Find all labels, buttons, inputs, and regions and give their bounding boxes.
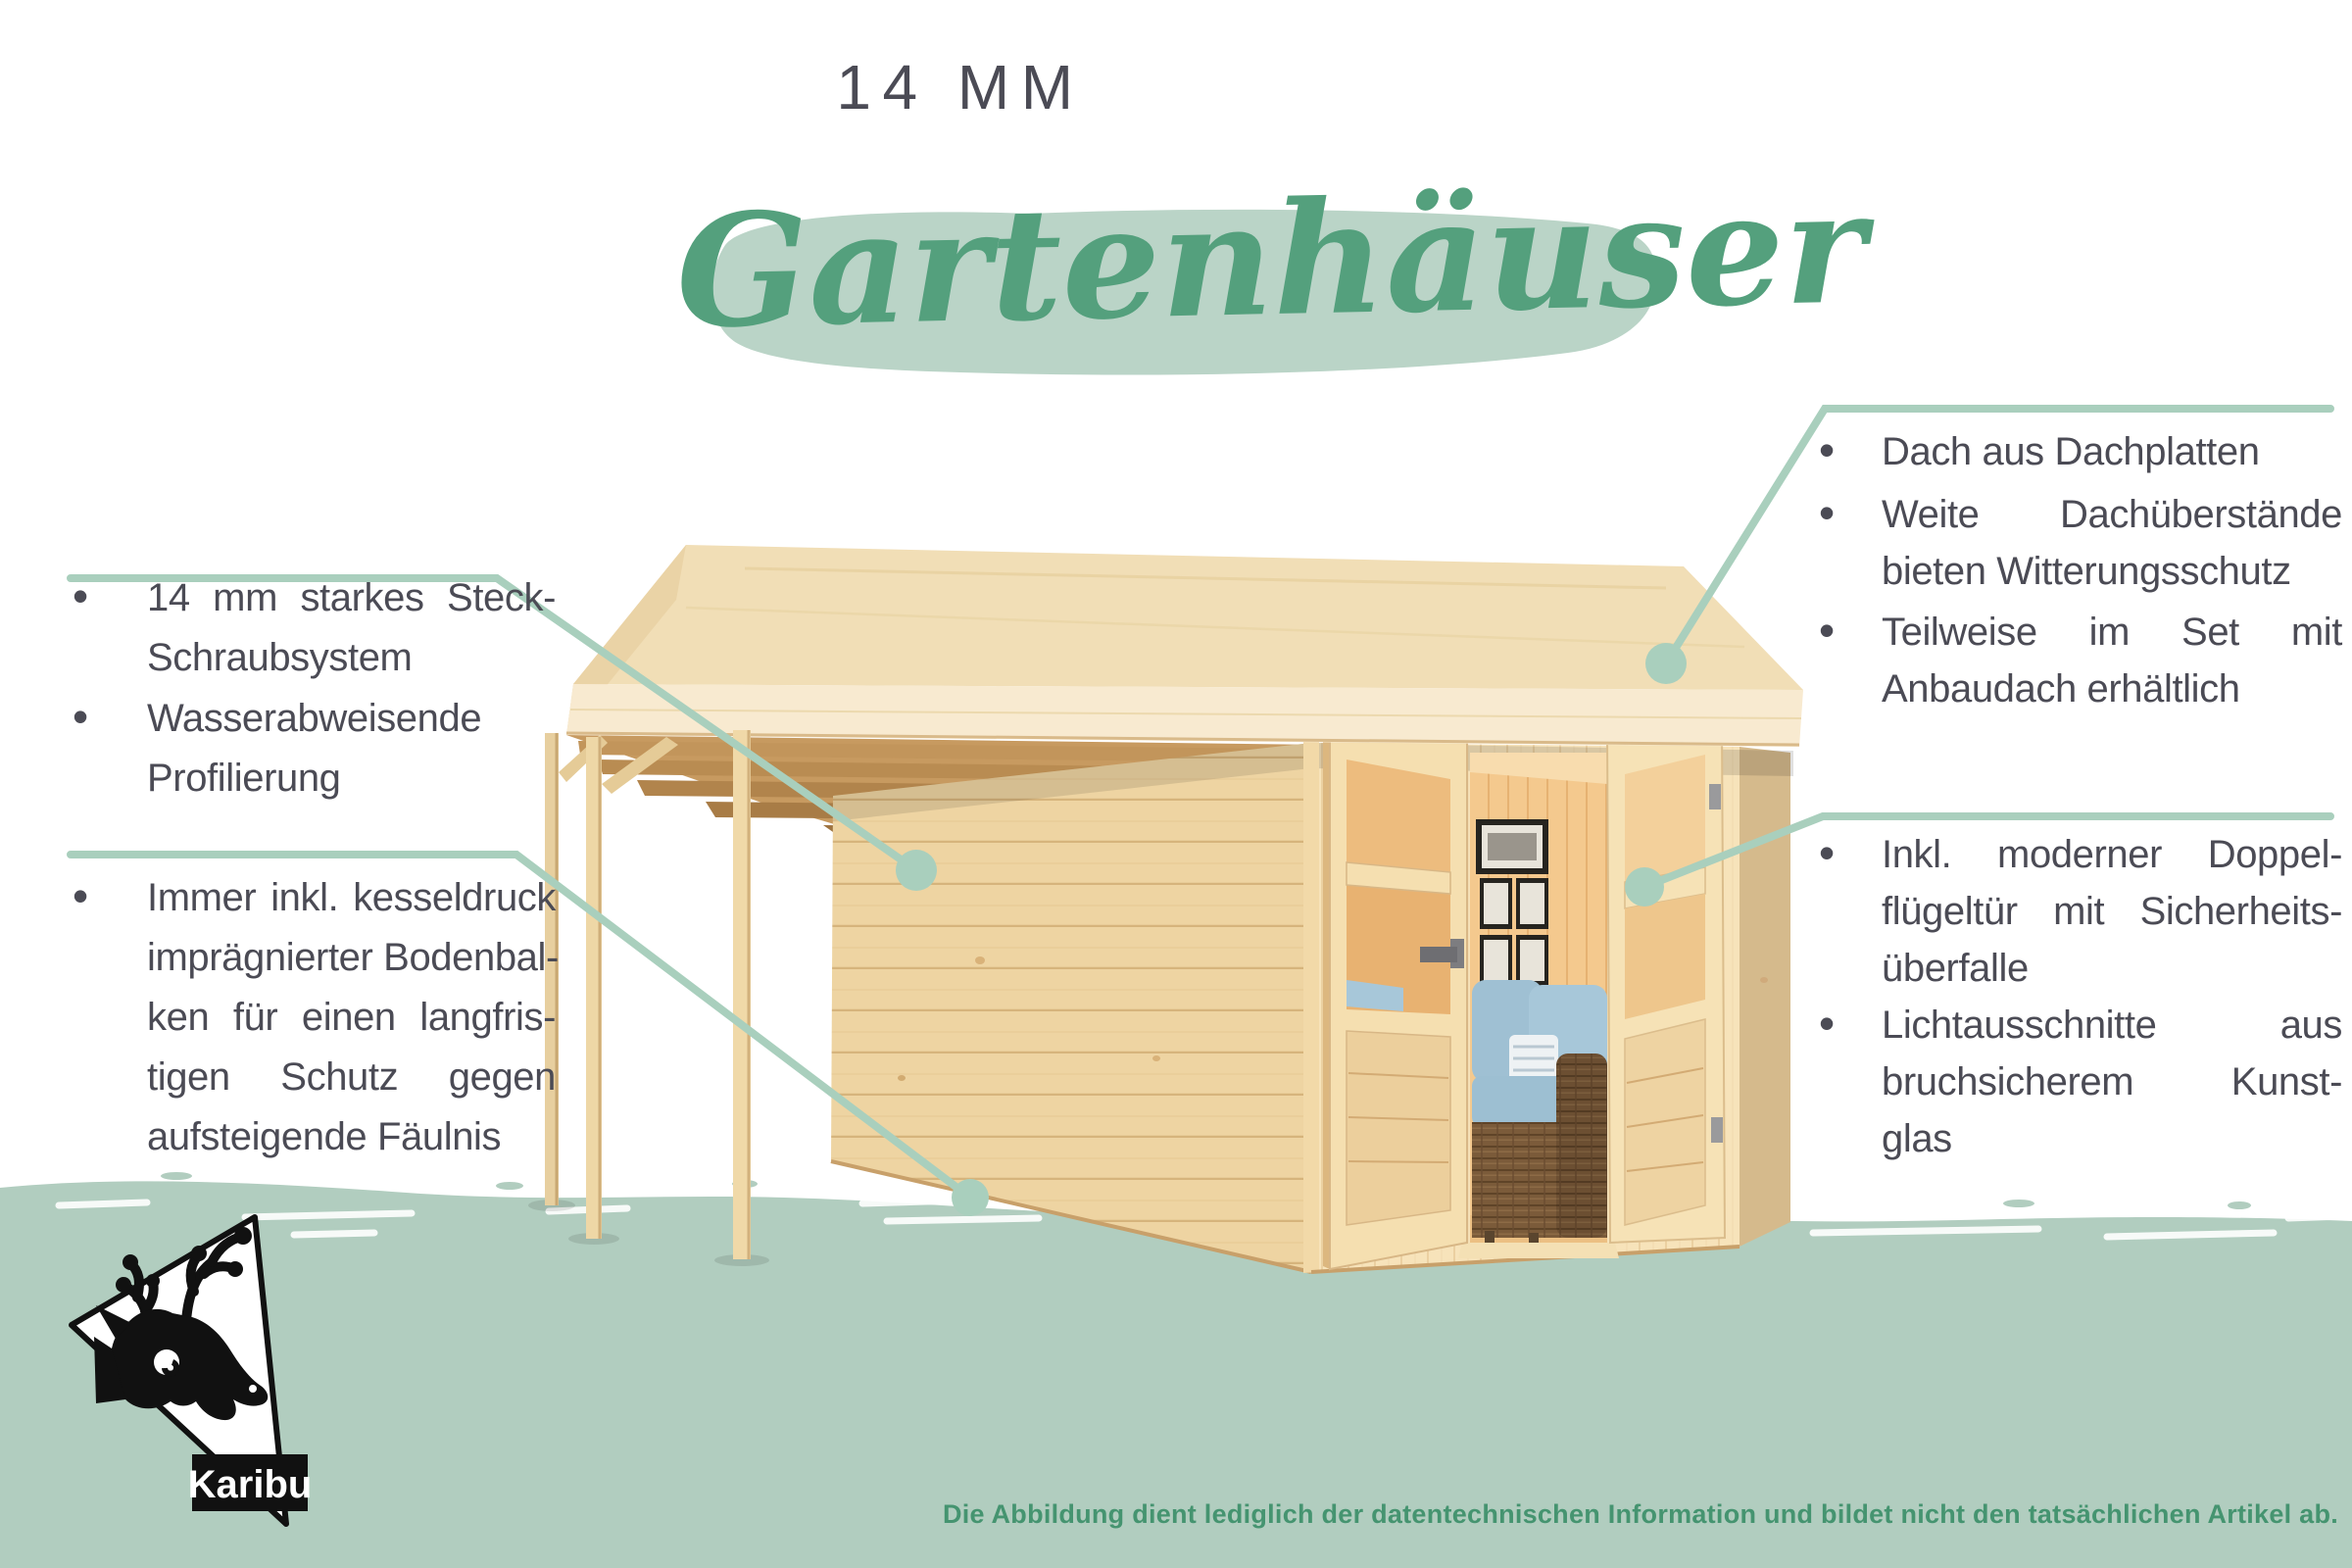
feature-line: 14 mm starkes Steck-	[147, 568, 556, 628]
left-door	[1323, 708, 1467, 1269]
feature-line: Immer inkl. kesseldruck	[147, 868, 556, 928]
feature-line: Schraubsystem	[147, 628, 556, 688]
feature-line: Weite Dachüberstände	[1882, 486, 2342, 543]
dot-bodenbalken	[952, 1179, 989, 1216]
feature-line: tigen Schutz gegen	[147, 1048, 556, 1107]
feature-item: • Inkl. moderner Doppel- flügeltür mit S…	[1815, 826, 2342, 997]
sofa	[1472, 980, 1607, 1243]
deer-nostril	[249, 1385, 257, 1393]
feature-line: Profilierung	[147, 749, 556, 808]
feature-line: imprägnierter Bodenbal-	[147, 928, 556, 988]
doorway-interior	[1470, 753, 1607, 1243]
feature-line: aufsteigende Fäulnis	[147, 1107, 556, 1167]
picture-frames	[1476, 819, 1548, 986]
dot-roof	[1645, 643, 1687, 684]
flyer-page: Karibu 14 MM Gartenhäuser • 14 mm starke…	[0, 0, 2352, 1568]
bullet-icon: •	[1819, 602, 1835, 659]
feature-item: • Lichtausschnitte aus bruchsicherem Kun…	[1815, 997, 2342, 1167]
headline-script: Gartenhäuser	[674, 154, 1688, 371]
feature-line: Teilweise im Set mit	[1882, 604, 2342, 661]
feature-item: • Wasserabweisende Profilierung	[69, 689, 556, 808]
canopy-posts	[528, 730, 769, 1266]
bullet-icon: •	[73, 866, 88, 926]
feature-line: Anbaudach erhältlich	[1882, 661, 2342, 717]
garden-house-illustration	[528, 545, 1803, 1273]
feature-line: bruchsicherem Kunst-	[1882, 1053, 2342, 1110]
feature-item: • 14 mm starkes Steck- Schraubsystem	[69, 568, 556, 688]
feature-line: glas	[1882, 1110, 2342, 1167]
feature-line: ken für einen langfris-	[147, 988, 556, 1048]
feature-item: • Dach aus Dachplatten	[1815, 423, 2342, 480]
bullet-icon: •	[73, 566, 88, 626]
logo-brand-text: Karibu	[188, 1463, 313, 1506]
side-wall	[831, 743, 1311, 1272]
feature-line: flügeltür mit Sicherheits-	[1882, 883, 2342, 940]
page-title: 14 MM	[686, 51, 1235, 123]
feature-line: Inkl. moderner Doppel-	[1882, 826, 2342, 883]
bullet-icon: •	[73, 687, 88, 747]
flat-roof	[566, 545, 1803, 747]
bullet-icon: •	[1819, 995, 1835, 1052]
feature-item: • Teilweise im Set mit Anbaudach erhältl…	[1815, 604, 2342, 717]
bullet-icon: •	[1819, 484, 1835, 541]
feature-line: überfalle	[1882, 940, 2342, 997]
bullet-icon: •	[1819, 824, 1835, 881]
feature-line: Dach aus Dachplatten	[1882, 423, 2342, 480]
feature-line: Lichtausschnitte aus	[1882, 997, 2342, 1053]
feature-line: bieten Witterungsschutz	[1882, 543, 2342, 600]
dot-door	[1625, 867, 1664, 906]
feature-item: • Immer inkl. kesseldruck imprägnierter …	[69, 868, 556, 1167]
footer-disclaimer: Die Abbildung dient lediglich der datent…	[868, 1499, 2338, 1530]
feature-item: • Weite Dachüberstände bieten Witterungs…	[1815, 486, 2342, 600]
dot-side-wall	[896, 850, 937, 891]
door-threshold	[1458, 1243, 1619, 1258]
feature-line: Wasserabweisende	[147, 689, 556, 749]
right-door	[1607, 722, 1725, 1243]
bullet-icon: •	[1819, 421, 1835, 478]
